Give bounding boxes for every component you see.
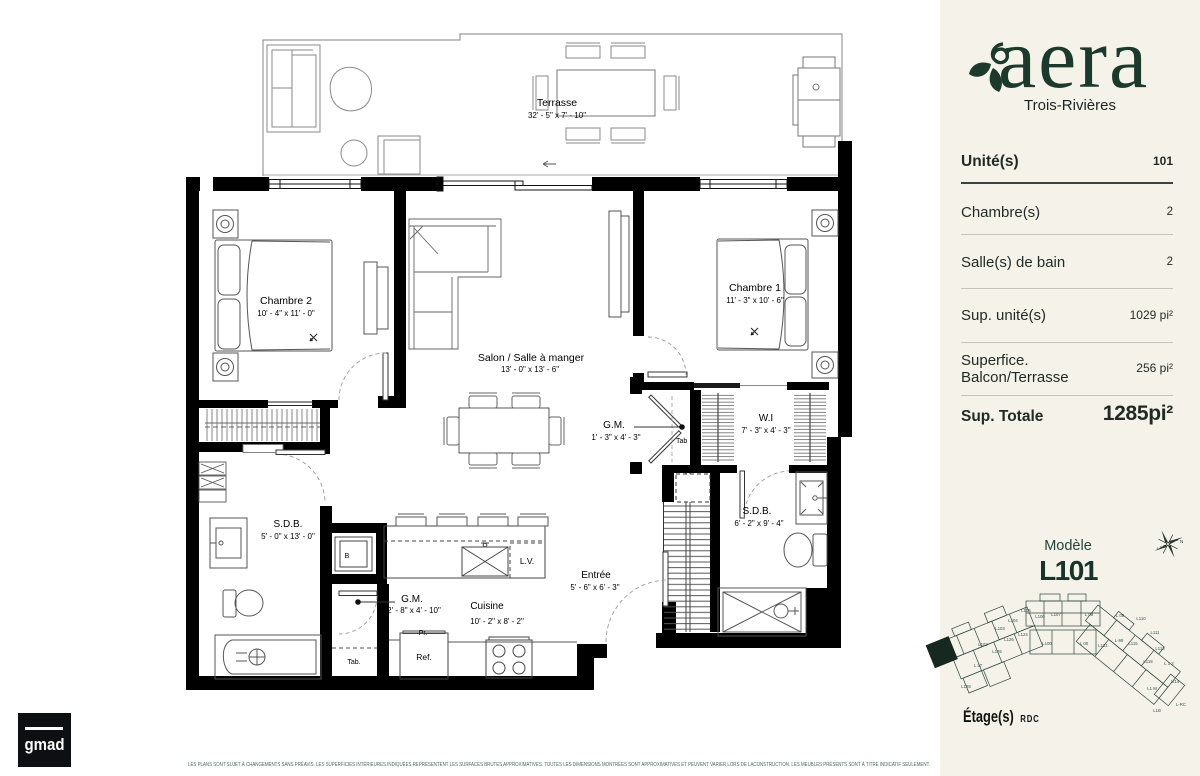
svg-text:L1 M: L1 M: [1147, 686, 1157, 691]
svg-text:L118: L118: [1143, 659, 1153, 664]
svg-text:11' - 3" x 10' - 6": 11' - 3" x 10' - 6": [726, 296, 784, 305]
svg-text:B: B: [345, 553, 350, 560]
svg-text:6' - 2" x 9' - 4": 6' - 2" x 9' - 4": [734, 519, 783, 528]
svg-text:L-99: L-99: [1115, 638, 1124, 643]
svg-text:L124: L124: [1018, 632, 1028, 637]
svg-text:Cuisine: Cuisine: [470, 601, 504, 612]
svg-text:L125: L125: [992, 649, 1002, 654]
svg-text:L111: L111: [1151, 630, 1161, 635]
svg-text:L 1 3: L 1 3: [1164, 661, 1174, 666]
svg-text:L121: L121: [1098, 643, 1108, 648]
svg-text:L128: L128: [961, 684, 971, 689]
svg-text:gmad: gmad: [25, 735, 65, 754]
svg-text:G.M.: G.M.: [603, 420, 625, 431]
svg-text:L113: L113: [1155, 646, 1165, 651]
svg-text:10' - 4" x 11' - 0": 10' - 4" x 11' - 0": [257, 309, 315, 318]
svg-text:13' - 0" x 13' - 6": 13' - 0" x 13' - 6": [501, 365, 559, 374]
svg-text:L100: L100: [1042, 641, 1052, 646]
svg-text:5' - 0" x 13' - 0": 5' - 0" x 13' - 0": [261, 532, 315, 541]
svg-text:L1B: L1B: [1153, 708, 1161, 713]
svg-text:L115: L115: [1128, 641, 1138, 646]
svg-text:L105: L105: [1021, 608, 1031, 613]
svg-text:Terrasse: Terrasse: [537, 97, 577, 109]
svg-text:Tab: Tab: [676, 438, 687, 445]
svg-text:Pr.: Pr.: [419, 630, 428, 637]
svg-text:Entrée: Entrée: [581, 570, 611, 581]
svg-text:L 08: L 08: [1085, 612, 1094, 617]
svg-text:10' - 2" x 8' - 2": 10' - 2" x 8' - 2": [470, 617, 524, 626]
svg-text:W.I: W.I: [759, 413, 773, 424]
svg-text:L107: L107: [1051, 612, 1061, 617]
svg-text:5' - 6" x 6' - 3": 5' - 6" x 6' - 3": [570, 583, 619, 592]
svg-text:Chambre 1: Chambre 1: [729, 282, 781, 294]
svg-text:L-RC: L-RC: [1176, 702, 1186, 707]
svg-text:1' - 3" x 4' - 3": 1' - 3" x 4' - 3": [591, 433, 640, 442]
svg-text:L103: L103: [995, 626, 1005, 631]
svg-text:L 00: L 00: [1080, 641, 1089, 646]
svg-text:L110: L110: [1136, 616, 1146, 621]
svg-text:7' - 3" x 4' - 3": 7' - 3" x 4' - 3": [741, 426, 790, 435]
svg-text:Ref.: Ref.: [416, 652, 432, 662]
svg-text:L126: L126: [1004, 637, 1014, 642]
svg-text:S.D.B.: S.D.B.: [274, 519, 303, 530]
svg-text:L 09: L 09: [1116, 613, 1125, 618]
svg-text:L102: L102: [978, 642, 988, 647]
svg-text:L 27: L 27: [974, 663, 983, 668]
svg-text:L/14: L/14: [1171, 679, 1180, 684]
svg-text:S.D.B.: S.D.B.: [743, 506, 772, 517]
svg-text:Chambre 2: Chambre 2: [260, 295, 312, 307]
svg-text:L106: L106: [1035, 614, 1045, 619]
svg-text:2' - 8" x 4' - 10": 2' - 8" x 4' - 10": [387, 606, 441, 615]
svg-text:Salon / Salle à manger: Salon / Salle à manger: [478, 352, 585, 364]
svg-text:Tab.: Tab.: [347, 659, 360, 666]
svg-text:G.M.: G.M.: [401, 594, 423, 605]
svg-text:LES PLANS SONT SUJET À CHANGEM: LES PLANS SONT SUJET À CHANGEMENTS SANS …: [188, 761, 930, 768]
svg-text:L104: L104: [1008, 618, 1018, 623]
svg-text:32' - 5" x 7' - 10": 32' - 5" x 7' - 10": [528, 111, 586, 120]
svg-text:L.V.: L.V.: [520, 556, 534, 566]
